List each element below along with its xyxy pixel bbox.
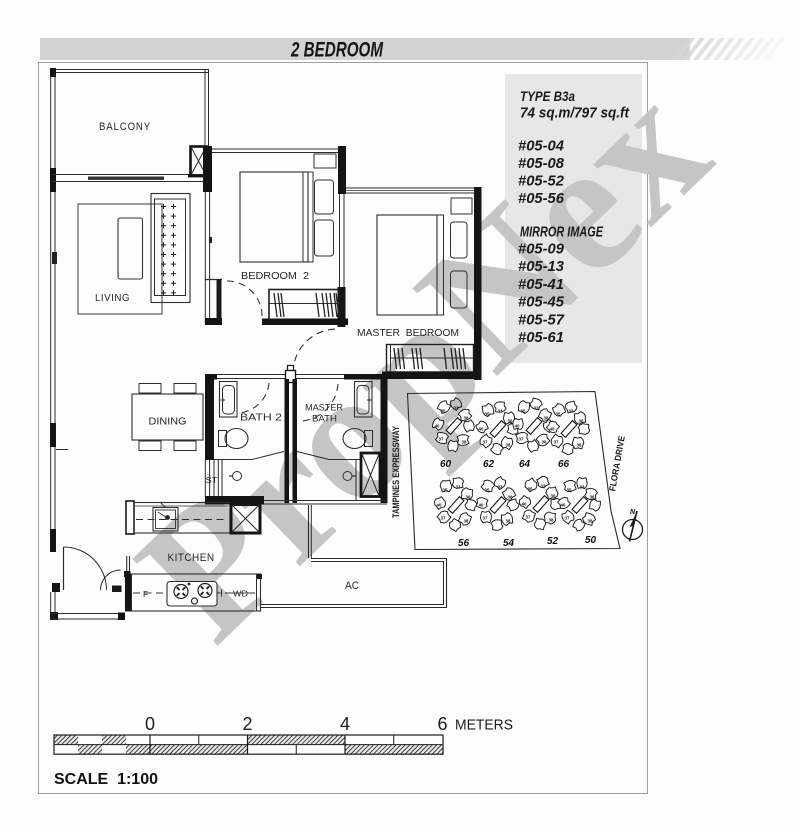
svg-text:AC: AC [345,580,359,592]
svg-text:35: 35 [521,409,526,414]
svg-text:37: 37 [519,437,524,442]
svg-text:36: 36 [551,494,556,499]
svg-text:LIVING: LIVING [95,292,130,304]
svg-text:60: 60 [440,459,452,470]
svg-text:35: 35 [485,488,490,493]
svg-text:#05-08: #05-08 [518,155,565,172]
svg-text:BATH 2: BATH 2 [240,413,283,424]
svg-text:40: 40 [479,427,484,432]
svg-text:33: 33 [534,406,539,411]
svg-text:MASTER BEDROOM: MASTER BEDROOM [357,327,459,339]
svg-text:40: 40 [561,503,566,508]
svg-text:WD: WD [233,590,248,599]
svg-text:BATH: BATH [312,414,337,424]
svg-text:KITCHEN: KITCHEN [168,552,215,564]
svg-text:37: 37 [554,440,559,445]
svg-text:74 sq.m/797 sq.ft: 74 sq.m/797 sq.ft [520,106,630,122]
svg-text:MASTER: MASTER [305,403,343,413]
svg-text:33: 33 [456,485,461,490]
svg-text:2 BEDROOM: 2 BEDROOM [290,39,383,62]
svg-text:38: 38 [542,440,547,445]
svg-text:35: 35 [485,412,490,417]
svg-text:38: 38 [588,519,593,524]
svg-text:BALCONY: BALCONY [99,121,151,133]
svg-text:38: 38 [577,443,582,448]
svg-text:37: 37 [483,440,488,445]
svg-text:36: 36 [466,495,471,500]
svg-text:#05-41: #05-41 [518,276,564,293]
svg-text:52: 52 [547,536,559,547]
svg-text:0: 0 [145,714,155,734]
svg-text:36: 36 [579,419,584,424]
svg-text:38: 38 [549,518,554,523]
svg-text:#05-13: #05-13 [518,258,565,275]
svg-text:METERS: METERS [455,718,513,734]
svg-text:#05-56: #05-56 [518,190,565,207]
svg-text:33: 33 [498,485,503,490]
svg-text:#05-04: #05-04 [518,138,565,155]
svg-text:6: 6 [437,714,447,734]
svg-text:36: 36 [590,495,595,500]
svg-text:64: 64 [519,459,531,470]
svg-text:36: 36 [508,419,513,424]
svg-text:37: 37 [565,516,570,521]
svg-text:2: 2 [242,714,252,734]
svg-text:TYPE B3a: TYPE B3a [520,88,575,104]
svg-text:36: 36 [464,416,469,421]
svg-text:#05-52: #05-52 [518,173,565,190]
svg-text:35: 35 [441,409,446,414]
svg-text:4: 4 [340,714,350,734]
svg-text:37: 37 [526,515,531,520]
svg-text:40: 40 [515,424,520,429]
svg-text:33: 33 [569,409,574,414]
svg-text:#05-09: #05-09 [518,241,565,258]
svg-text:33: 33 [541,484,546,489]
svg-text:33: 33 [454,406,459,411]
svg-text:40: 40 [435,424,440,429]
svg-text:37: 37 [483,516,488,521]
svg-text:36: 36 [544,416,549,421]
svg-text:#05-61: #05-61 [518,329,564,346]
svg-text:ST: ST [206,475,218,485]
svg-text:38: 38 [506,443,511,448]
svg-text:35: 35 [567,488,572,493]
svg-text:F: F [143,589,148,599]
svg-text:38: 38 [506,519,511,524]
svg-text:#05-45: #05-45 [518,294,565,311]
svg-text:35: 35 [556,412,561,417]
svg-text:62: 62 [483,459,495,470]
svg-text:66: 66 [558,459,570,470]
svg-text:33: 33 [580,485,585,490]
svg-text:40: 40 [437,503,442,508]
svg-text:37: 37 [441,516,446,521]
svg-text:SCALE 1:100: SCALE 1:100 [54,771,158,788]
svg-text:BEDROOM 2: BEDROOM 2 [241,270,309,282]
svg-text:35: 35 [528,487,533,492]
svg-text:56: 56 [458,538,470,549]
svg-text:#05-57: #05-57 [518,311,565,328]
svg-text:50: 50 [585,535,597,546]
svg-text:DINING: DINING [149,416,187,428]
svg-text:40: 40 [522,502,527,507]
svg-text:54: 54 [503,538,515,549]
svg-text:40: 40 [550,427,555,432]
svg-text:33: 33 [498,409,503,414]
svg-text:MIRROR IMAGE: MIRROR IMAGE [520,225,604,241]
svg-text:36: 36 [508,495,513,500]
svg-text:37: 37 [439,437,444,442]
svg-text:38: 38 [462,440,467,445]
svg-text:TAMPINES EXPRESSWAY: TAMPINES EXPRESSWAY [391,426,401,518]
svg-text:38: 38 [464,519,469,524]
svg-text:40: 40 [479,503,484,508]
svg-text:35: 35 [443,488,448,493]
